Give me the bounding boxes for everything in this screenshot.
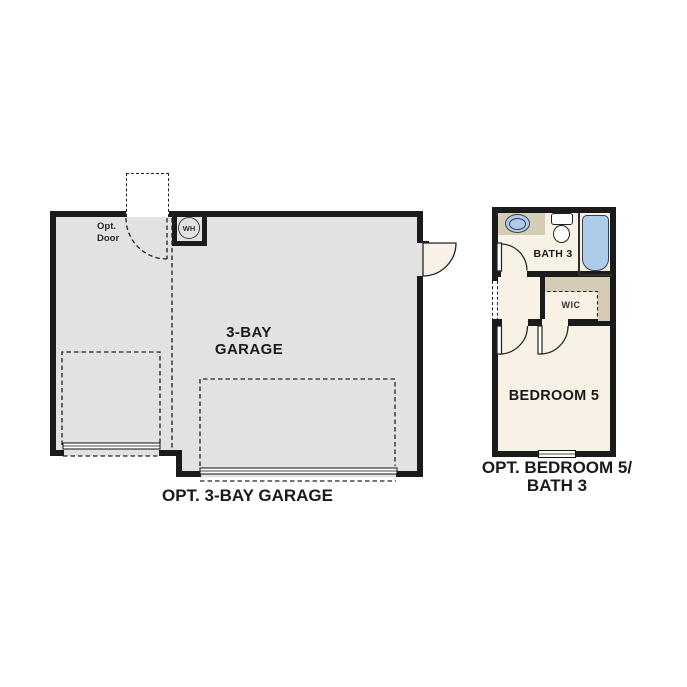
- sink-bowl-icon: [509, 218, 526, 230]
- opt-door-landing: [126, 173, 169, 217]
- garage-wall-right-lower: [417, 276, 423, 477]
- wic-label: WIC: [553, 300, 589, 310]
- water-heater-icon: WH: [178, 217, 200, 239]
- garage-wall-right-upper: [417, 211, 423, 243]
- opt-door-label-line2: Door: [97, 233, 135, 245]
- toilet-bowl-icon: [553, 225, 570, 243]
- unit-wall-right: [610, 207, 616, 457]
- bedroom-wall-middle: [528, 319, 542, 326]
- garage-wall-bottom-right-a: [182, 471, 201, 477]
- bedroom-wall-stub-left: [492, 319, 502, 326]
- entry-door-jamb-top: [423, 241, 429, 246]
- bathtub-icon: [582, 215, 609, 271]
- garage-wall-bottom-right-b: [396, 471, 423, 477]
- tub-niche-wall: [578, 213, 580, 276]
- wh-alcove-wall-bottom: [172, 241, 207, 246]
- garage-room-label-line2: GARAGE: [164, 342, 334, 359]
- tub-niche-sill: [578, 274, 612, 276]
- entry-door-jamb-bottom: [423, 271, 429, 276]
- bedroom-label: BEDROOM 5: [494, 388, 614, 404]
- garage-caption: OPT. 3-BAY GARAGE: [125, 486, 370, 505]
- bedroom-unit-caption: OPT. BEDROOM 5/ BATH 3: [462, 459, 652, 494]
- garage-wall-bottom-left-a: [50, 450, 64, 456]
- garage-room-label-line1: 3-BAY: [164, 325, 334, 342]
- bath-wall-stub-left: [492, 271, 501, 277]
- opt-door-label-line1: Opt.: [97, 221, 135, 233]
- garage-room-label: 3-BAY GARAGE: [164, 325, 334, 358]
- opt-door-label: Opt. Door: [97, 221, 135, 244]
- garage-wall-left: [50, 211, 56, 456]
- garage-floor-extension: [178, 440, 423, 477]
- bedroom-unit-caption-line1: OPT. BEDROOM 5/: [462, 459, 652, 477]
- floor-plan-canvas: WH Opt. Door 3-BAY GARAGE OPT. 3-BAY GAR…: [0, 0, 687, 687]
- garage-wall-top: [50, 211, 423, 217]
- wic-shelf-right: [598, 292, 610, 321]
- unit-wall-left-optional-opening: [492, 281, 498, 321]
- bedroom-window: [538, 450, 576, 458]
- bath-label: BATH 3: [523, 248, 583, 260]
- bedroom-unit-caption-line2: BATH 3: [462, 477, 652, 495]
- toilet-tank-icon: [551, 213, 573, 225]
- wic-shelf-top: [545, 277, 610, 292]
